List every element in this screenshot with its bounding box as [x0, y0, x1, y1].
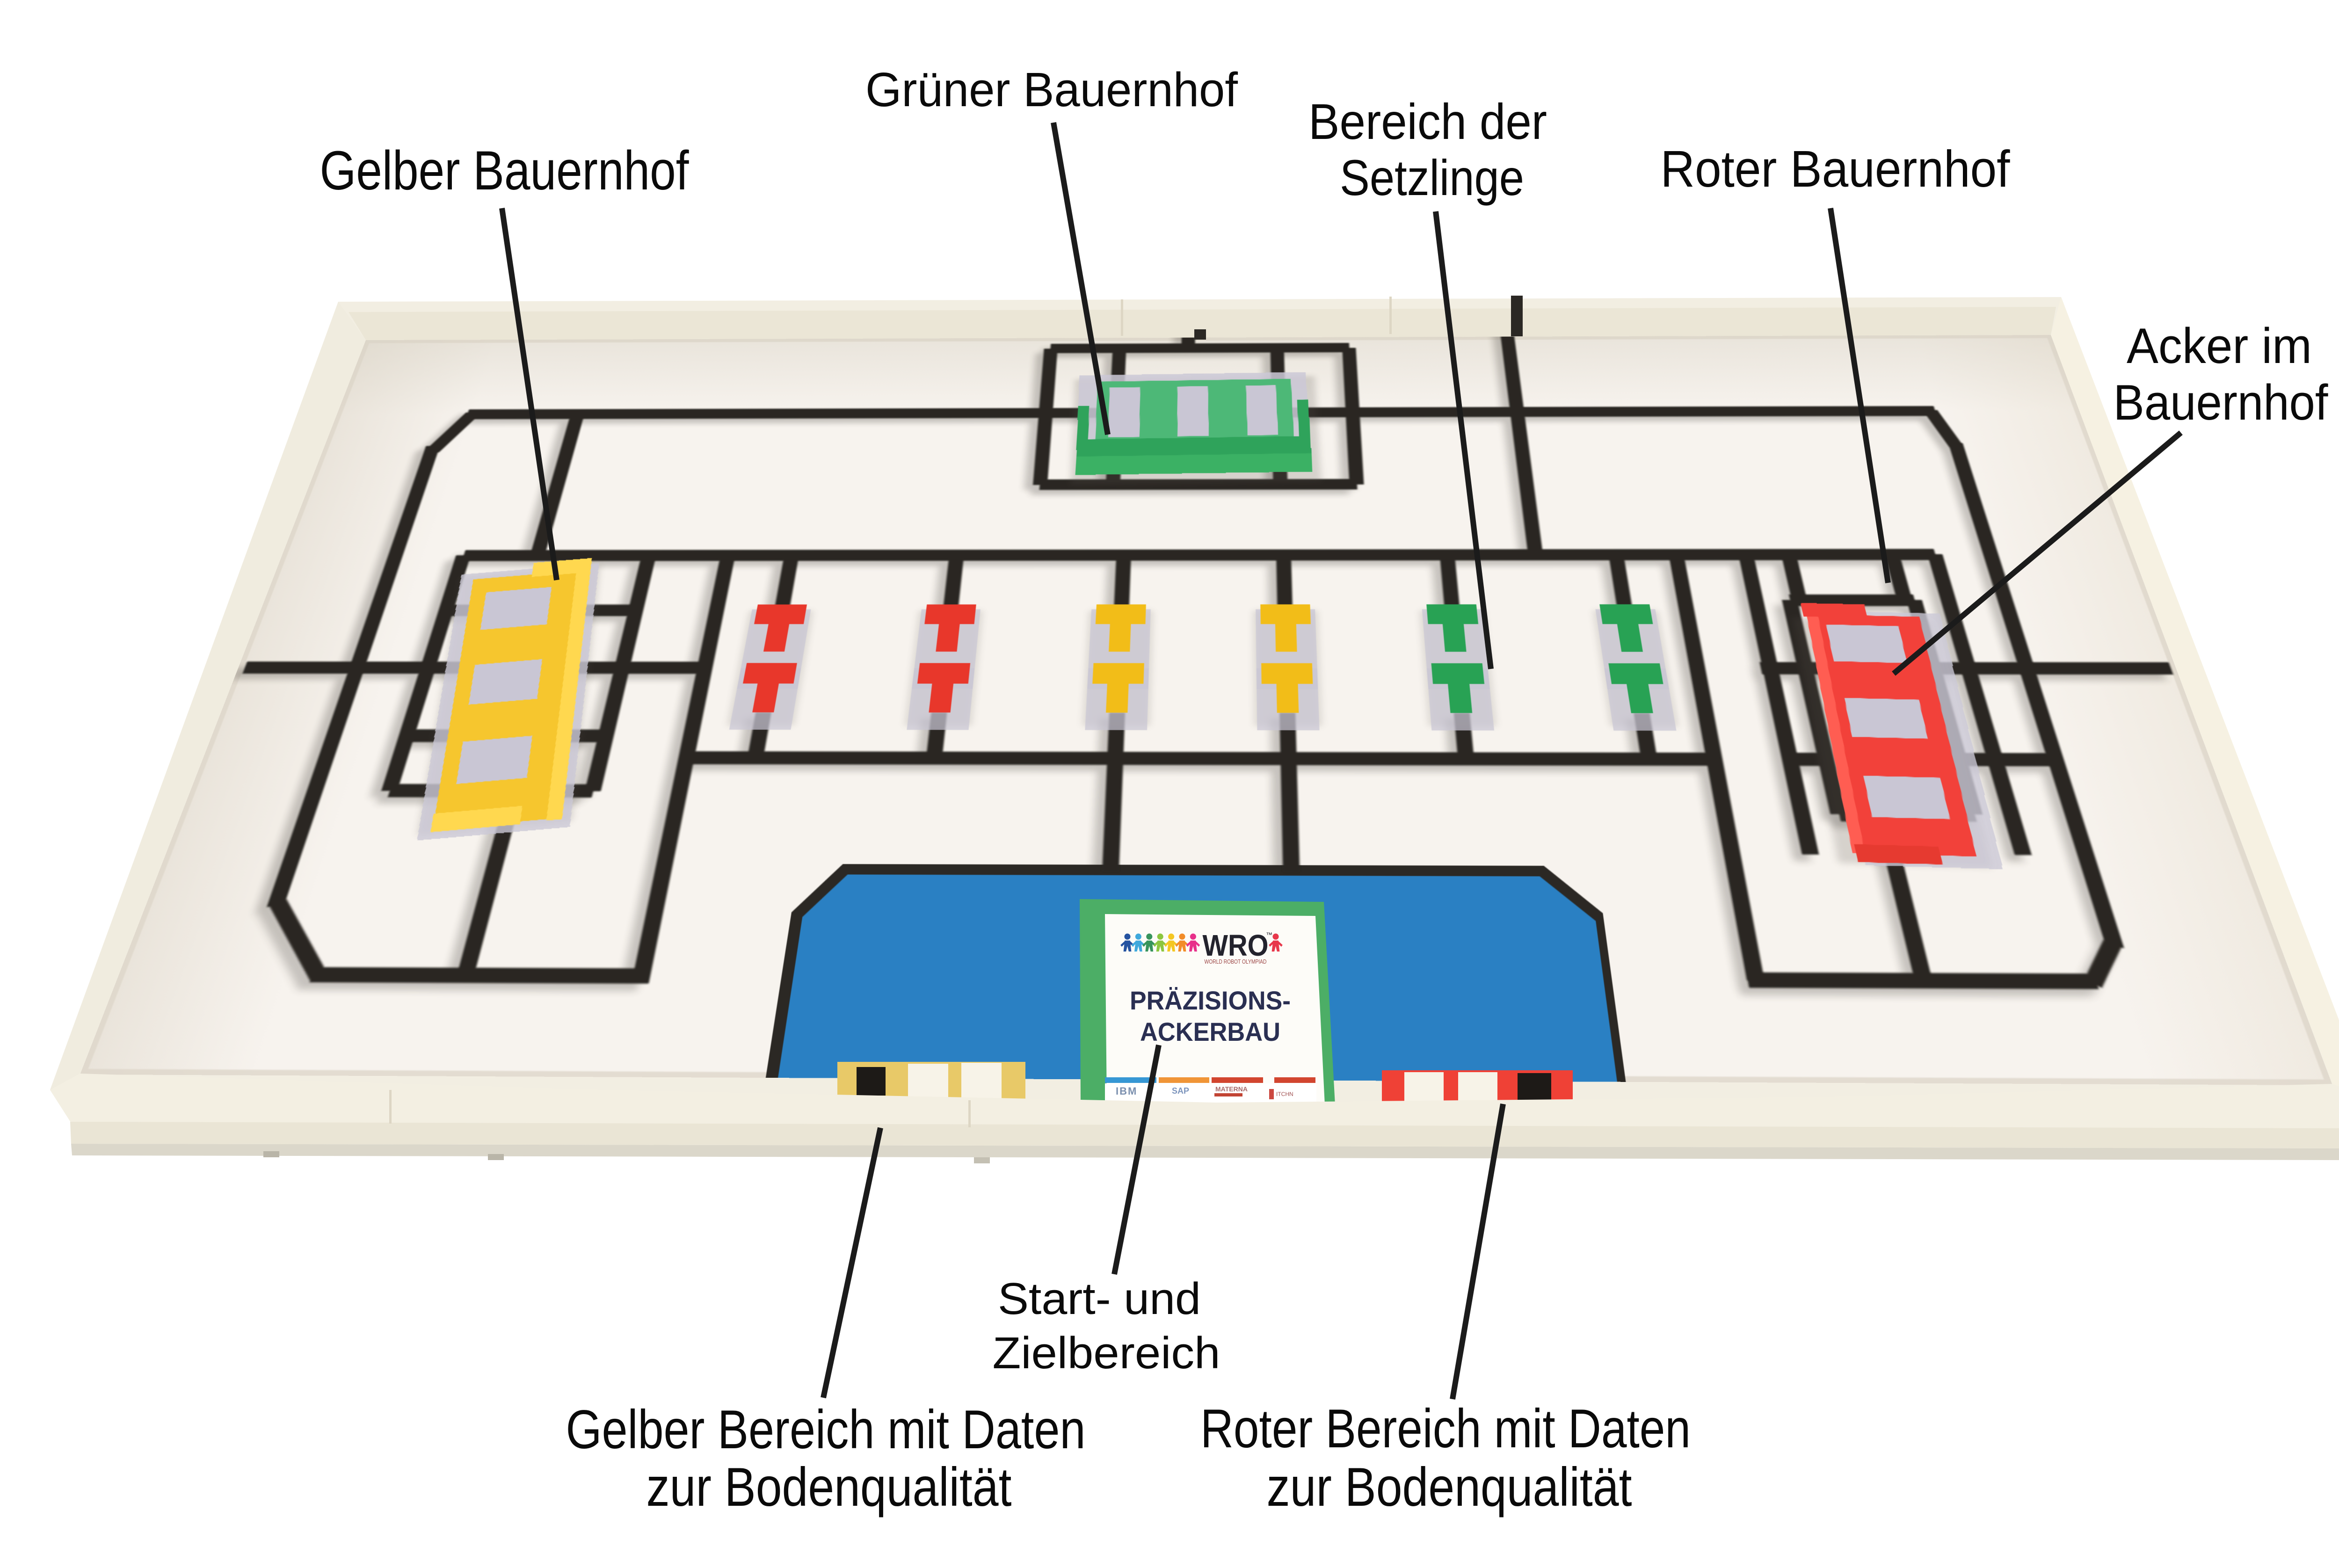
- svg-text:Roter Bauernhof: Roter Bauernhof: [1661, 140, 2010, 198]
- svg-text:Grüner Bauernhof: Grüner Bauernhof: [865, 63, 1238, 116]
- svg-text:IBM: IBM: [1116, 1085, 1137, 1097]
- svg-text:Setzlinge: Setzlinge: [1340, 149, 1524, 206]
- svg-text:Roter Bereich mit Daten: Roter Bereich mit Daten: [1200, 1398, 1691, 1459]
- svg-text:Gelber Bauernhof: Gelber Bauernhof: [320, 140, 689, 202]
- svg-text:Start- und: Start- und: [998, 1274, 1201, 1324]
- svg-text:™: ™: [1266, 931, 1272, 938]
- svg-text:Acker im: Acker im: [2127, 318, 2312, 374]
- svg-text:ITCHN: ITCHN: [1276, 1091, 1293, 1097]
- svg-text:zur Bodenqualität: zur Bodenqualität: [646, 1456, 1012, 1517]
- svg-text:WORLD ROBOT OLYMPIAD: WORLD ROBOT OLYMPIAD: [1205, 958, 1267, 965]
- svg-text:Zielbereich: Zielbereich: [993, 1328, 1220, 1378]
- svg-text:zur Bodenqualität: zur Bodenqualität: [1267, 1456, 1632, 1517]
- svg-text:Bereich der: Bereich der: [1308, 93, 1547, 150]
- svg-text:Bauernhof: Bauernhof: [2114, 374, 2328, 430]
- svg-text:WRO: WRO: [1203, 929, 1269, 962]
- svg-text:Gelber Bereich mit Daten: Gelber Bereich mit Daten: [566, 1399, 1086, 1460]
- svg-text:PRÄZISIONS-: PRÄZISIONS-: [1130, 986, 1291, 1015]
- svg-text:ACKERBAU: ACKERBAU: [1140, 1017, 1280, 1046]
- svg-text:SAP: SAP: [1172, 1086, 1189, 1096]
- svg-text:MATERNA: MATERNA: [1215, 1085, 1248, 1093]
